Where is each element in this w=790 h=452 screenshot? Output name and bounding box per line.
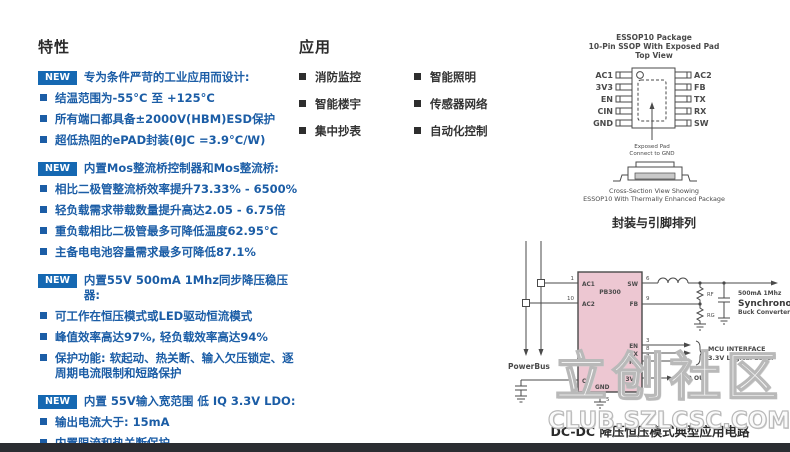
rg-label: RG	[707, 313, 715, 319]
pin-number: 9	[646, 296, 650, 302]
inductor-icon	[658, 278, 688, 283]
bullet-icon	[40, 206, 47, 213]
feature-group-header: 内置55V 500mA 1Mhz同步降压稳压器:	[84, 273, 302, 303]
pin-label: 3V3	[596, 83, 613, 92]
datasheet-page: 特性 NEW 专为条件严苛的工业应用而设计: 结温范围为-55°C 至 +125…	[0, 0, 790, 452]
bullet-icon	[40, 227, 47, 234]
bullet-icon	[40, 136, 47, 143]
package-title: ESSOP10 Package	[616, 33, 692, 42]
feature-group-3: NEW 内置55V 500mA 1Mhz同步降压稳压器: 可工作在恒压模式或LE…	[38, 273, 302, 381]
mcu-interface-label: MCU INTERFACE	[708, 345, 765, 353]
pin-label: GND	[593, 119, 613, 128]
bullet-icon	[40, 354, 47, 361]
feature-item: 相比二极管整流桥效率提升73.33% - 6500%	[38, 182, 302, 197]
application-item: 智能照明	[414, 70, 529, 84]
resistor-rf-icon	[697, 283, 703, 303]
bullet-icon	[40, 94, 47, 101]
buck-name-label: Synchronous	[738, 299, 790, 309]
powerbus-label: PowerBus	[508, 362, 550, 371]
features-section: 特性 NEW 专为条件严苛的工业应用而设计: 结温范围为-55°C 至 +125…	[38, 36, 302, 452]
bullet-icon	[414, 127, 421, 134]
new-badge: NEW	[38, 395, 77, 409]
feature-group-2: NEW 内置Mos整流桥控制器和Mos整流桥: 相比二极管整流桥效率提升73.3…	[38, 161, 302, 260]
feature-item: 结温范围为-55°C 至 +125°C	[38, 91, 302, 106]
pin-number: 10	[567, 296, 574, 302]
pin-label: CIN	[597, 107, 613, 116]
bullet-icon	[414, 73, 421, 80]
application-item: 智能楼宇	[299, 97, 414, 111]
feature-item: 主备电电池容量需求最多可降低87.1%	[38, 245, 302, 260]
mcu-interface-lines	[642, 341, 703, 365]
chip-pin-name: EN	[629, 344, 638, 350]
feature-item: 超低热阻的ePAD封装(θJC =3.9°C/W)	[38, 133, 302, 148]
feature-group-header: 专为条件严苛的工业应用而设计:	[84, 70, 250, 85]
bullet-icon	[414, 100, 421, 107]
pin-label: RX	[694, 107, 707, 116]
feature-item: 保护功能: 软起动、热关断、输入欠压锁定、逐周期电流限制和短路保护	[38, 351, 302, 381]
pin-label: SW	[694, 119, 709, 128]
bullet-icon	[40, 185, 47, 192]
feature-item: 可工作在恒压模式或LED驱动恒流模式	[38, 309, 302, 324]
application-item: 自动化控制	[414, 124, 529, 138]
application-schematic: PowerBus PB300 AC1 AC2 CIN SW FB EN TX R…	[500, 238, 790, 421]
pin-number: 7	[646, 354, 650, 360]
feature-group-header: 内置Mos整流桥控制器和Mos整流桥:	[84, 161, 279, 176]
new-badge: NEW	[38, 162, 77, 176]
bullet-icon	[40, 312, 47, 319]
pin-number: 3	[646, 338, 650, 344]
chip-pin-name: GND	[595, 385, 610, 391]
chip-pin-name: SW	[627, 282, 638, 288]
bullet-icon	[40, 333, 47, 340]
left-pins	[616, 72, 632, 126]
bullet-icon	[40, 418, 47, 425]
pad-note: Connect to GND	[629, 151, 674, 157]
feature-item: 输出电流大于: 15mA	[38, 415, 302, 430]
chip-label: PB300	[599, 289, 621, 296]
brace-icon	[696, 341, 703, 365]
node-square-icon	[523, 300, 530, 307]
features-title: 特性	[38, 36, 302, 57]
input-capacitor	[515, 380, 578, 402]
buck-type-label: Buck Converter	[738, 309, 790, 316]
chip-pin-name: AC1	[582, 282, 595, 288]
cross-section-caption: ESSOP10 With Thermally Enhanced Package	[583, 195, 725, 203]
package-diagram: ESSOP10 Package 10-Pin SSOP With Exposed…	[570, 28, 790, 238]
node-square-icon	[538, 280, 545, 287]
pin-number: 4	[571, 373, 575, 379]
chip-pin-name: FB	[630, 302, 639, 308]
cross-section-drawing	[613, 162, 697, 181]
application-item: 集中抄表	[299, 124, 414, 138]
applications-title: 应用	[299, 36, 529, 57]
pin-number: 1	[571, 276, 575, 282]
pin-number: 6	[646, 276, 650, 282]
pinout-section-title: 封装与引脚排列	[612, 215, 696, 230]
chip-pin-name: RX	[629, 360, 638, 366]
feature-group-header: 内置 55V输入宽范围 低 IQ 3.3V LDO:	[84, 394, 296, 409]
bullet-icon	[299, 127, 306, 134]
pin-label: AC1	[595, 71, 613, 80]
pin1-marker-icon	[637, 72, 644, 79]
pad-arrowhead-icon	[650, 102, 655, 109]
chip-pin-name: 3V3	[625, 377, 638, 383]
feature-item: 所有端口都具备±2000V(HBM)ESD保护	[38, 112, 302, 127]
pad-note: Exposed Pad	[634, 144, 670, 150]
chip-ground	[594, 392, 606, 408]
feature-item: 峰值效率高达97%, 轻负载效率高达94%	[38, 330, 302, 345]
chip-pin-name: TX	[630, 352, 639, 358]
bullet-icon	[40, 248, 47, 255]
rf-label: RF	[707, 292, 714, 298]
chip-pin-name: AC2	[582, 302, 595, 308]
applications-section: 应用 消防监控 智能照明 智能楼宇 传感器网络 集中抄表 自动化控制	[299, 36, 529, 138]
bottom-bar	[0, 443, 790, 452]
new-badge: NEW	[38, 274, 77, 288]
output-arrowhead-icon	[771, 281, 778, 286]
resistor-rg-icon	[697, 304, 703, 324]
cross-section-caption: Cross-Section View Showing	[609, 187, 699, 195]
mcu-level-label: 3.3V Logical Level	[708, 354, 773, 362]
pin-label: FB	[694, 83, 706, 92]
feature-group-1: NEW 专为条件严苛的工业应用而设计: 结温范围为-55°C 至 +125°C …	[38, 70, 302, 148]
pin-number: 8	[646, 346, 650, 352]
feature-item: 轻负载需求带载数量提升高达2.05 - 6.75倍	[38, 203, 302, 218]
pin-label: AC2	[694, 71, 712, 80]
buck-rating-label: 500mA 1Mhz	[738, 290, 782, 297]
schematic-caption: DC-DC 降压恒压模式典型应用电路	[540, 421, 760, 440]
ldo-out-label: LDO OUT	[678, 375, 709, 382]
bullet-icon	[40, 115, 47, 122]
pin-label: TX	[694, 95, 706, 104]
new-badge: NEW	[38, 71, 77, 85]
pin-number: 2	[646, 371, 650, 377]
package-view-label: Top View	[635, 51, 673, 60]
bullet-icon	[299, 73, 306, 80]
chip-pin-name: CIN	[582, 379, 593, 385]
bullet-icon	[299, 100, 306, 107]
feature-item: 重负载相比二极管最多可降低温度62.95°C	[38, 224, 302, 239]
pin-number: 5	[606, 397, 610, 403]
application-item: 传感器网络	[414, 97, 529, 111]
package-subtitle: 10-Pin SSOP With Exposed Pad	[589, 42, 720, 51]
right-pins	[675, 72, 691, 126]
application-item: 消防监控	[299, 70, 414, 84]
pin-label: EN	[601, 95, 613, 104]
